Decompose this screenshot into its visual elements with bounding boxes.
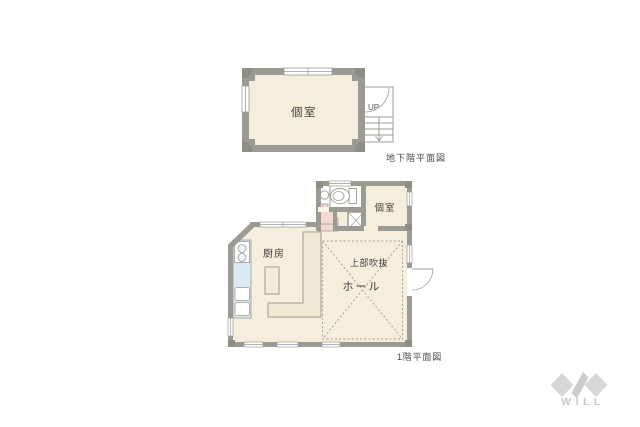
toilet-door-opening xyxy=(318,207,329,212)
door-arc xyxy=(412,269,433,290)
will-logo: WILL xyxy=(551,372,608,408)
kitchen-label: 厨房 xyxy=(263,247,285,260)
hall-right-window xyxy=(407,245,412,263)
floor-plan-image: 個室 UP 地下階平面図 xyxy=(0,0,640,427)
hall-label: ホール xyxy=(343,280,382,293)
basement-left-window xyxy=(242,86,249,112)
toilet-icon xyxy=(331,189,357,204)
bottom-window-1 xyxy=(244,342,263,347)
logo-diamond-left xyxy=(551,373,574,397)
stairs-icon xyxy=(365,87,393,142)
floor-plan-svg: 個室 UP 地下階平面図 xyxy=(0,0,640,427)
left-wall-window xyxy=(228,318,233,336)
basement-plan: 個室 UP 地下階平面図 xyxy=(242,68,446,163)
logo-text: WILL xyxy=(561,396,605,408)
toilet-top-window xyxy=(329,181,351,186)
logo-diamond-right xyxy=(585,373,608,397)
private-room-label: 個室 xyxy=(374,202,395,214)
stairs-up-label: UP xyxy=(368,103,379,112)
kitchen-top-window xyxy=(260,222,306,227)
hall-opening xyxy=(364,226,378,231)
bottom-window-2 xyxy=(277,342,298,347)
kitchen-counter xyxy=(233,240,251,318)
hall-door xyxy=(407,268,433,296)
basement-top-window xyxy=(284,68,332,75)
wash-basin-icon xyxy=(320,191,328,199)
stove-icon xyxy=(235,242,250,263)
void-label: 上部吹抜 xyxy=(350,257,388,268)
private-room-window xyxy=(407,192,412,206)
kitchen-island xyxy=(265,267,279,294)
first-floor-plan: 厨房 個室 上部吹抜 ホール 1階平面図 xyxy=(228,181,442,362)
basement-room-label: 個室 xyxy=(291,105,317,119)
basement-caption: 地下階平面図 xyxy=(386,152,446,163)
bottom-window-3 xyxy=(322,342,340,347)
first-floor-caption: 1階平面図 xyxy=(397,352,442,362)
